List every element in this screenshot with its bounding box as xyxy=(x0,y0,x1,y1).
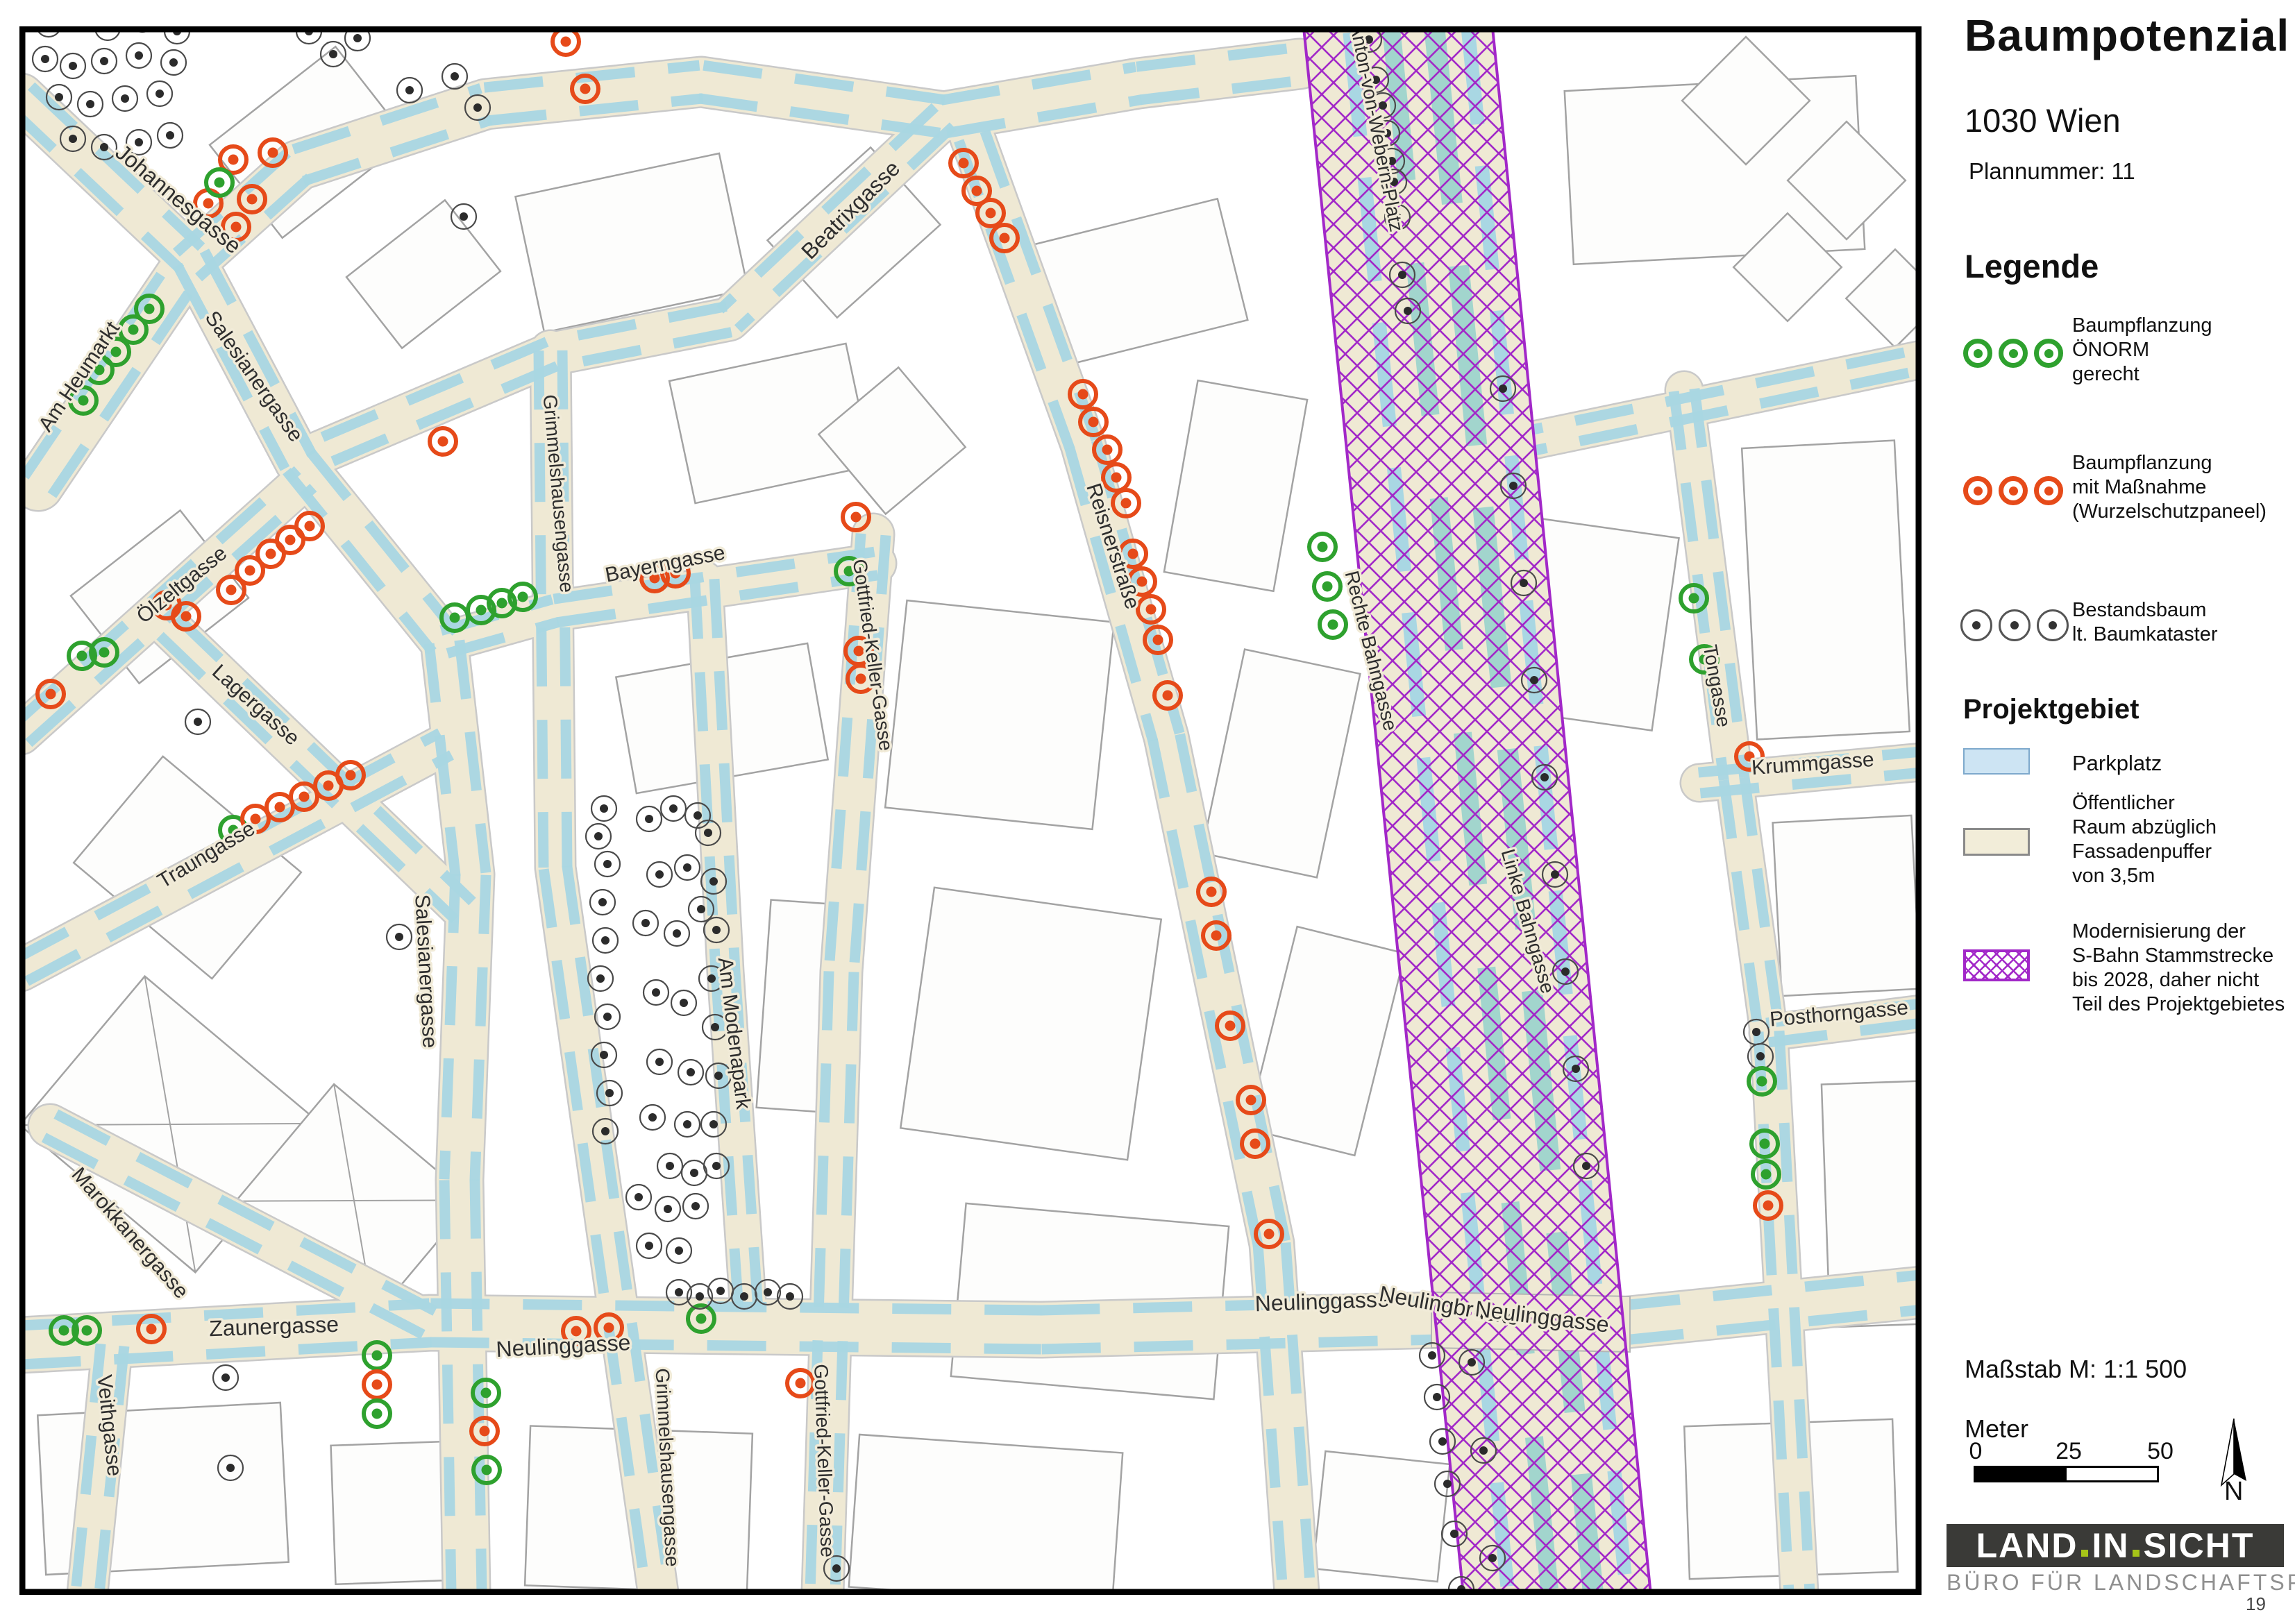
page-number: 19 xyxy=(2246,1593,2266,1615)
street-label: Salesianergasse xyxy=(410,894,442,1049)
tree-bestand-icon xyxy=(33,46,58,71)
tree-bestand-icon xyxy=(666,1238,691,1263)
building xyxy=(1846,249,1922,347)
street-label: Zaunergasse xyxy=(209,1312,339,1341)
logo-dot xyxy=(2081,1550,2088,1557)
legend-label-onorm: Baumpflanzung ÖNORM gerecht xyxy=(2072,314,2212,387)
tree-bestand-icon xyxy=(637,1233,662,1258)
tree-onorm-icon xyxy=(364,1401,390,1427)
tree-bestand-icon xyxy=(112,86,137,111)
tree-bestand-icon xyxy=(678,1060,703,1085)
tree-massnahme-icon xyxy=(296,513,323,539)
building xyxy=(1247,927,1405,1156)
page-subtitle: 1030 Wien xyxy=(1965,101,2121,139)
tree-massnahme-icon xyxy=(430,428,456,455)
tree-bestand-icon xyxy=(655,1196,680,1221)
tree-bestand-icon xyxy=(2037,609,2069,641)
tree-onorm-icon xyxy=(1309,534,1336,560)
tree-onorm-icon xyxy=(1314,573,1340,600)
building xyxy=(900,888,1161,1160)
street-label: Neulinggasse xyxy=(1254,1287,1390,1317)
tree-bestand-icon xyxy=(595,852,620,877)
legend-label-parkplatz: Parkplatz xyxy=(2072,751,2162,775)
tick-0: 0 xyxy=(1969,1438,1983,1465)
building xyxy=(346,200,501,348)
map-canvas: JohannesgasseSalesianergasseAm HeumarktB… xyxy=(19,26,1922,1595)
tree-onorm-icon xyxy=(2034,339,2063,368)
scale-text: Maßstab M: 1:1 500 xyxy=(1965,1355,2187,1384)
tree-bestand-icon xyxy=(675,855,700,880)
tree-bestand-icon xyxy=(593,928,618,953)
legend-label-bestand: Bestandsbaum lt. Baumkataster xyxy=(2072,598,2218,647)
tree-bestand-icon xyxy=(664,921,689,946)
tick-50: 50 xyxy=(2147,1438,2174,1465)
legend-label-sbahn: Modernisierung der S-Bahn Stammstrecke b… xyxy=(2072,920,2285,1017)
tree-bestand-icon xyxy=(586,824,611,849)
building xyxy=(849,1435,1123,1595)
tree-bestand-icon xyxy=(126,43,151,68)
legend-symbol-onorm xyxy=(1963,339,2063,368)
raum-swatch xyxy=(1963,828,2030,856)
scalebar-fill xyxy=(1976,1468,2067,1480)
building xyxy=(1202,650,1361,878)
tree-bestand-icon xyxy=(595,1004,620,1029)
tree-bestand-icon xyxy=(626,1185,651,1210)
plan-sheet: JohannesgasseSalesianergasseAm HeumarktB… xyxy=(0,0,2295,1624)
legend-heading: Legende xyxy=(1965,247,2099,285)
tree-onorm-icon xyxy=(1963,339,1992,368)
building xyxy=(885,600,1114,829)
tree-bestand-icon xyxy=(442,64,467,89)
tree-bestand-icon xyxy=(590,890,615,915)
logo-part1: LAND xyxy=(1976,1525,2078,1566)
logo: LANDINSICHT xyxy=(1947,1524,2284,1567)
logo-subtitle: BÜRO FÜR LANDSCHAFTSPLANUNG xyxy=(1947,1570,2287,1596)
tree-bestand-icon xyxy=(591,796,616,821)
tree-bestand-icon xyxy=(640,1105,665,1130)
tree-bestand-icon xyxy=(633,911,658,936)
legend-symbol-massnahme xyxy=(1963,476,2063,505)
tree-onorm-icon xyxy=(1999,339,2028,368)
sidebar: Baumpotenzial 1030 Wien Plannummer: 11 L… xyxy=(1944,0,2295,1624)
tree-onorm-icon xyxy=(206,169,233,196)
tree-bestand-icon xyxy=(661,796,686,821)
tree-onorm-icon xyxy=(1320,611,1346,638)
legend-project-heading: Projektgebiet xyxy=(1963,694,2139,725)
tree-bestand-icon xyxy=(60,53,85,78)
tree-bestand-icon xyxy=(647,862,672,887)
legend-label-raum: Öffentlicher Raum abzüglich Fassadenpuff… xyxy=(2072,791,2217,888)
tick-25: 25 xyxy=(2056,1438,2082,1465)
tree-bestand-icon xyxy=(647,1049,672,1074)
scalebar xyxy=(1974,1466,2159,1482)
parkplatz-swatch xyxy=(1963,748,2030,775)
logo-dot xyxy=(2133,1550,2140,1557)
legend-symbol-bestand xyxy=(1960,609,2069,641)
building xyxy=(331,1441,447,1584)
tree-bestand-icon xyxy=(397,78,422,103)
tree-bestand-icon xyxy=(161,50,186,75)
logo-part3: SICHT xyxy=(2143,1525,2254,1566)
tree-massnahme-icon xyxy=(1963,476,1992,505)
building xyxy=(1313,1451,1450,1582)
building xyxy=(1773,815,1921,996)
logo-part2: IN xyxy=(2092,1525,2129,1566)
tree-bestand-icon xyxy=(683,1194,708,1219)
tree-bestand-icon xyxy=(92,49,117,74)
building xyxy=(1164,380,1307,591)
tree-bestand-icon xyxy=(671,990,696,1015)
tree-bestand-icon xyxy=(387,924,412,949)
tree-bestand-icon xyxy=(185,709,210,734)
tree-bestand-icon xyxy=(637,806,662,831)
tree-bestand-icon xyxy=(675,1112,700,1137)
tree-bestand-icon xyxy=(147,81,172,106)
page-title: Baumpotenzial xyxy=(1965,10,2289,61)
tree-massnahme-icon xyxy=(2034,476,2063,505)
sbahn-swatch xyxy=(1963,949,2030,981)
north-label: N xyxy=(2224,1477,2243,1507)
map-panel: JohannesgasseSalesianergasseAm HeumarktB… xyxy=(19,26,1922,1595)
tree-bestand-icon xyxy=(682,1160,707,1185)
tree-bestand-icon xyxy=(657,1153,682,1178)
tree-bestand-icon xyxy=(78,92,103,117)
tree-bestand-icon xyxy=(1960,609,1992,641)
tree-bestand-icon xyxy=(158,123,183,148)
building xyxy=(1742,441,1910,740)
tree-bestand-icon xyxy=(213,1365,238,1390)
tree-massnahme-icon xyxy=(364,1371,390,1398)
tree-bestand-icon xyxy=(1999,609,2031,641)
legend-label-massnahme: Baumpflanzung mit Maßnahme (Wurzelschutz… xyxy=(2072,451,2267,524)
tree-massnahme-icon xyxy=(553,28,579,55)
tree-bestand-icon xyxy=(644,980,669,1005)
tree-massnahme-icon xyxy=(1999,476,2028,505)
plan-number: Plannummer: 11 xyxy=(1969,158,2135,185)
